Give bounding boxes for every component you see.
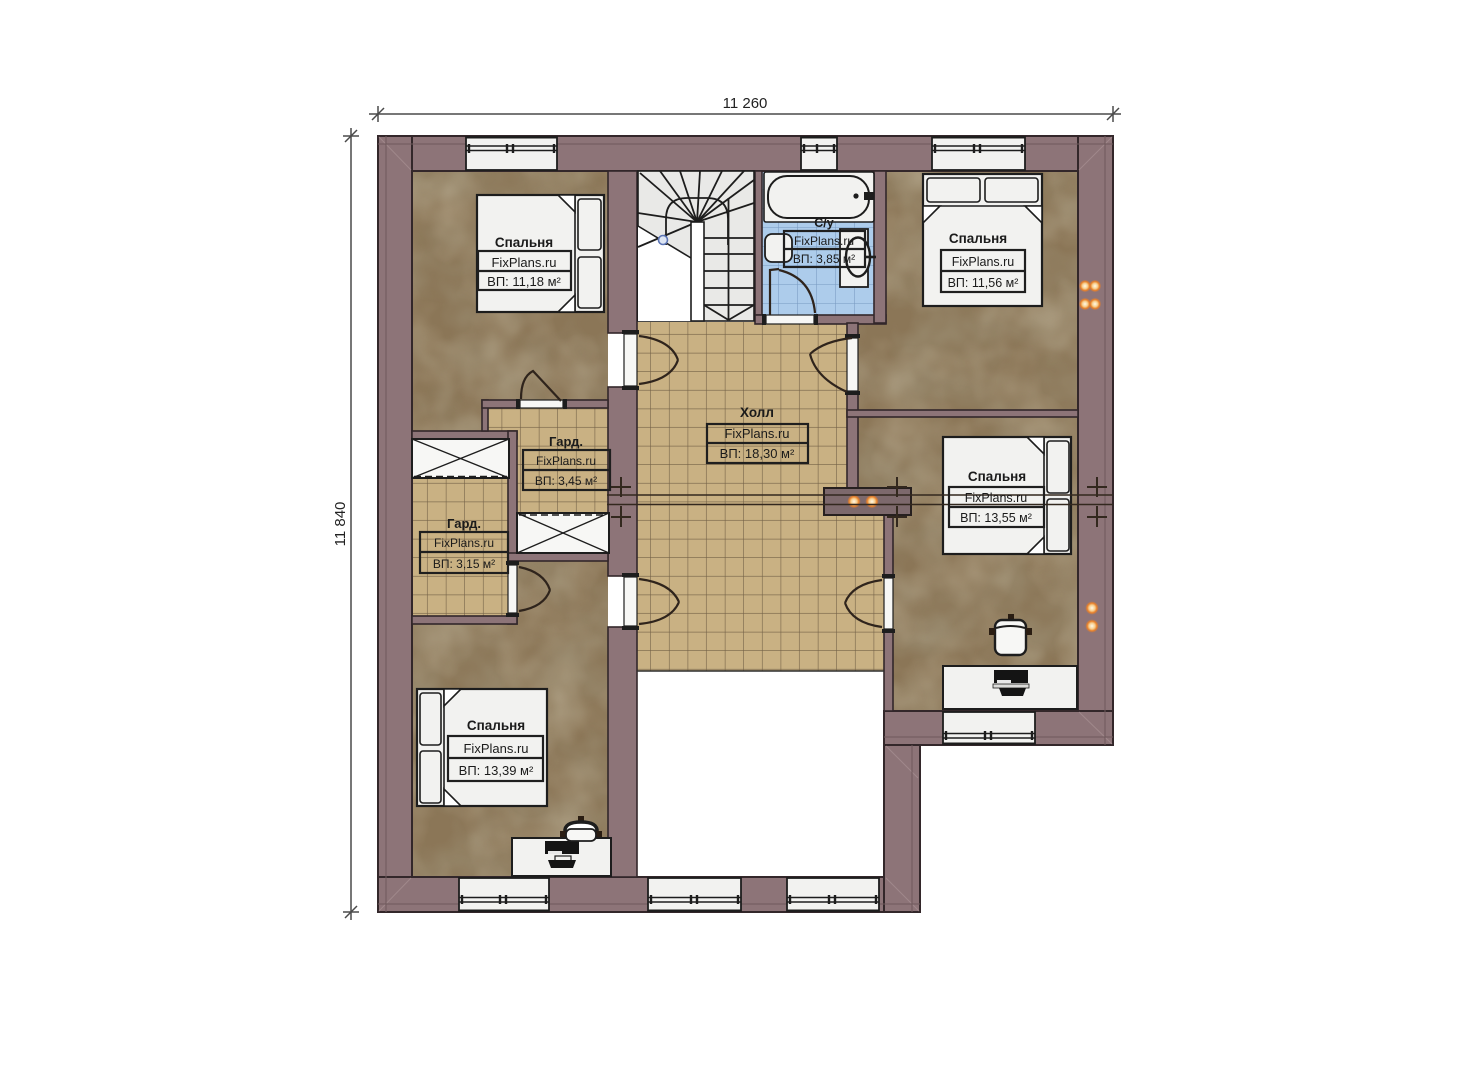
svg-text:ВП: 11,56 м²: ВП: 11,56 м² xyxy=(948,276,1019,290)
svg-text:FixPlans.ru: FixPlans.ru xyxy=(724,426,789,441)
svg-text:Гард.: Гард. xyxy=(447,516,481,531)
svg-text:ВП: 3,45 м²: ВП: 3,45 м² xyxy=(535,474,597,488)
svg-text:FixPlans.ru: FixPlans.ru xyxy=(965,491,1028,505)
svg-text:FixPlans.ru: FixPlans.ru xyxy=(952,255,1015,269)
svg-text:Спальня: Спальня xyxy=(968,469,1026,484)
svg-text:Гард.: Гард. xyxy=(549,434,583,449)
svg-text:11 260: 11 260 xyxy=(723,95,768,112)
svg-text:ВП: 13,39 м²: ВП: 13,39 м² xyxy=(459,763,534,778)
svg-text:ВП: 3,85 м²: ВП: 3,85 м² xyxy=(793,252,855,266)
svg-text:11 840: 11 840 xyxy=(332,502,349,547)
svg-text:ВП: 13,55 м²: ВП: 13,55 м² xyxy=(960,511,1032,525)
svg-text:FixPlans.ru: FixPlans.ru xyxy=(434,536,494,550)
svg-text:FixPlans.ru: FixPlans.ru xyxy=(536,454,596,468)
svg-text:Спальня: Спальня xyxy=(467,718,525,733)
svg-text:Холл: Холл xyxy=(740,405,774,420)
svg-text:FixPlans.ru: FixPlans.ru xyxy=(463,741,528,756)
svg-text:ВП: 18,30 м²: ВП: 18,30 м² xyxy=(720,446,795,461)
svg-text:С/у: С/у xyxy=(814,216,834,230)
svg-text:ВП: 11,18 м²: ВП: 11,18 м² xyxy=(487,274,561,289)
svg-text:FixPlans.ru: FixPlans.ru xyxy=(794,234,854,248)
svg-text:Спальня: Спальня xyxy=(949,231,1007,246)
svg-text:Спальня: Спальня xyxy=(495,235,553,250)
svg-text:ВП: 3,15 м²: ВП: 3,15 м² xyxy=(433,557,495,571)
svg-text:FixPlans.ru: FixPlans.ru xyxy=(491,255,556,270)
